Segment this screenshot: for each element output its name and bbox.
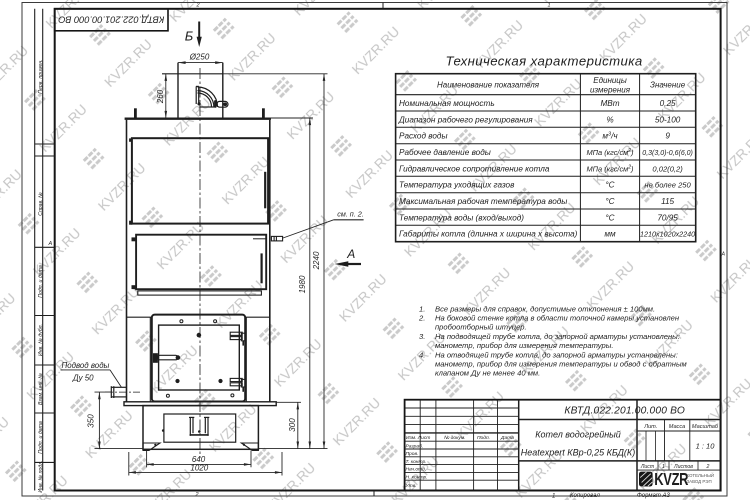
svg-text:Температура воды (вход/выход): Температура воды (вход/выход) — [399, 213, 524, 222]
svg-text:°С: °С — [605, 197, 614, 206]
svg-text:1: 1 — [552, 493, 555, 499]
svg-text:На отводящей трубе котла, до з: На отводящей трубе котла, до запорной ар… — [435, 350, 678, 359]
svg-text:Гидравлическое сопротивление к: Гидравлическое сопротивление котла — [399, 164, 550, 173]
svg-text:Номинальная мощность: Номинальная мощность — [399, 99, 495, 108]
svg-text:Диапазон рабочего регулировани: Диапазон рабочего регулирования — [398, 115, 533, 124]
svg-text:Копировал: Копировал — [570, 493, 600, 499]
svg-text:70/95: 70/95 — [657, 213, 678, 222]
svg-text:КОТЕЛЬНЫЙ: КОТЕЛЬНЫЙ — [687, 473, 715, 478]
svg-text:Разраб.: Разраб. — [406, 443, 424, 449]
svg-text:Наименование показателя: Наименование показателя — [437, 81, 540, 90]
svg-text:Нач.отд.: Нач.отд. — [406, 467, 427, 473]
svg-text:1020: 1020 — [190, 463, 208, 472]
svg-text:1980: 1980 — [298, 275, 307, 293]
svg-text:Максимальная рабочая температу: Максимальная рабочая температура воды — [399, 197, 567, 206]
svg-text:Перв. примен.: Перв. примен. — [38, 59, 44, 93]
svg-text:манометр, прибор для измерения: манометр, прибор для измерения температу… — [435, 360, 688, 369]
svg-text:Подп. и дата: Подп. и дата — [38, 421, 44, 454]
svg-text:измерения: измерения — [590, 86, 631, 95]
svg-text:Н. контр.: Н. контр. — [406, 475, 428, 481]
svg-text:Расход воды: Расход воды — [399, 132, 447, 141]
svg-text:115: 115 — [661, 197, 674, 206]
svg-text:м3/ч: м3/ч — [602, 132, 618, 141]
svg-text:%: % — [606, 115, 613, 124]
svg-text:Лист: Лист — [640, 464, 655, 470]
svg-text:Единицы: Единицы — [593, 76, 627, 85]
svg-text:260: 260 — [156, 89, 165, 104]
svg-text:50-100: 50-100 — [655, 115, 681, 124]
svg-text:Подп. и дата: Подп. и дата — [38, 265, 44, 298]
svg-text:KVZR: KVZR — [654, 470, 688, 489]
svg-text:°С: °С — [605, 181, 614, 190]
svg-text:МПа (кгс/см2): МПа (кгс/см2) — [587, 164, 634, 173]
svg-text:Ду 50: Ду 50 — [72, 374, 94, 383]
svg-text:Дата: Дата — [500, 435, 514, 441]
svg-text:2240: 2240 — [312, 251, 321, 270]
svg-text:А: А — [47, 241, 52, 247]
svg-text:Габариты котла (длинна х ширин: Габариты котла (длинна х ширина х высота… — [399, 230, 578, 239]
svg-text:клапаном Ду не менее 40 мм.: клапаном Ду не менее 40 мм. — [435, 369, 540, 378]
svg-text:мм: мм — [604, 230, 616, 239]
svg-text:А: А — [721, 251, 726, 257]
svg-text:350: 350 — [86, 414, 95, 428]
svg-text:1 : 10: 1 : 10 — [696, 442, 716, 451]
svg-text:Подвод воды: Подвод воды — [62, 361, 110, 370]
svg-text:2: 2 — [706, 464, 710, 470]
svg-text:Температура уходящих газов: Температура уходящих газов — [399, 181, 515, 190]
svg-text:3.: 3. — [419, 332, 425, 341]
svg-text:9: 9 — [665, 132, 670, 141]
svg-text:Значение: Значение — [650, 81, 686, 90]
svg-text:Листов: Листов — [673, 464, 693, 470]
svg-text:Подп.: Подп. — [477, 435, 490, 441]
svg-text:пробоотборный штуцер.: пробоотборный штуцер. — [435, 323, 527, 332]
svg-text:не более 250: не более 250 — [644, 181, 691, 190]
svg-text:КВТД.022.201.00.000 ВО: КВТД.022.201.00.000 ВО — [58, 14, 164, 24]
svg-text:КВТД.022.201.00.000 ВО: КВТД.022.201.00.000 ВО — [564, 406, 685, 417]
svg-text:Масштаб: Масштаб — [692, 424, 719, 430]
svg-text:2: 2 — [195, 2, 199, 8]
svg-text:А: А — [346, 247, 355, 261]
svg-text:Heatexpert КВр-0,25 КБД(К): Heatexpert КВр-0,25 КБД(К) — [521, 448, 635, 458]
svg-text:Формат А3: Формат А3 — [637, 493, 670, 499]
svg-text:Инв. № подл.: Инв. № подл. — [38, 460, 44, 492]
svg-text:На подводящей трубе котла, до: На подводящей трубе котла, до запорной а… — [435, 332, 680, 341]
svg-text:0,3(3,0)-0,6(6,0): 0,3(3,0)-0,6(6,0) — [642, 150, 693, 157]
svg-text:Инв. № дубл.: Инв. № дубл. — [38, 324, 44, 356]
svg-text:0,25: 0,25 — [660, 99, 676, 108]
svg-text:МВт: МВт — [600, 99, 619, 108]
svg-text:300: 300 — [288, 418, 297, 432]
svg-text:Пров.: Пров. — [406, 451, 419, 457]
svg-text:Котел водогрейный: Котел водогрейный — [535, 430, 621, 440]
svg-text:Взам. инв. №: Взам. инв. № — [38, 373, 44, 405]
svg-text:На боковой стенке котла в обла: На боковой стенке котла в области топочн… — [435, 314, 680, 323]
svg-text:4.: 4. — [419, 350, 425, 359]
svg-text:манометр, прибор для измерения: манометр, прибор для измерения температу… — [435, 341, 613, 350]
svg-text:1.: 1. — [419, 304, 425, 313]
svg-text:°С: °С — [605, 213, 614, 222]
svg-text:0,02(0,2): 0,02(0,2) — [652, 164, 683, 173]
svg-text:Рабочее давление воды: Рабочее давление воды — [399, 148, 491, 157]
svg-text:Масса: Масса — [669, 424, 686, 430]
svg-text:см. п. 2.: см. п. 2. — [337, 210, 363, 219]
svg-text:2.: 2. — [418, 314, 425, 323]
svg-text:Справ. №: Справ. № — [38, 192, 44, 216]
svg-text:МПа (кгс/см2): МПа (кгс/см2) — [587, 148, 634, 157]
svg-text:Изм. Лист: Изм. Лист — [406, 435, 430, 441]
svg-text:Все размеры для справок, допус: Все размеры для справок, допустимые откл… — [435, 304, 655, 313]
svg-text:Б: Б — [185, 29, 194, 44]
svg-text:Утв.: Утв. — [406, 483, 417, 489]
svg-text:2: 2 — [194, 492, 198, 498]
svg-text:Лит.: Лит. — [643, 424, 657, 430]
svg-text:1: 1 — [547, 2, 550, 8]
svg-text:1210х1020х2240: 1210х1020х2240 — [640, 230, 695, 239]
svg-text:1: 1 — [662, 464, 665, 470]
svg-text:Т. контр.: Т. контр. — [406, 459, 427, 465]
svg-text:Техническая характеристика: Техническая характеристика — [445, 54, 642, 69]
svg-text:Ø250: Ø250 — [189, 53, 210, 62]
svg-text:ЗАВОД РЭП: ЗАВОД РЭП — [687, 479, 712, 484]
svg-text:№ докум.: № докум. — [444, 435, 466, 441]
